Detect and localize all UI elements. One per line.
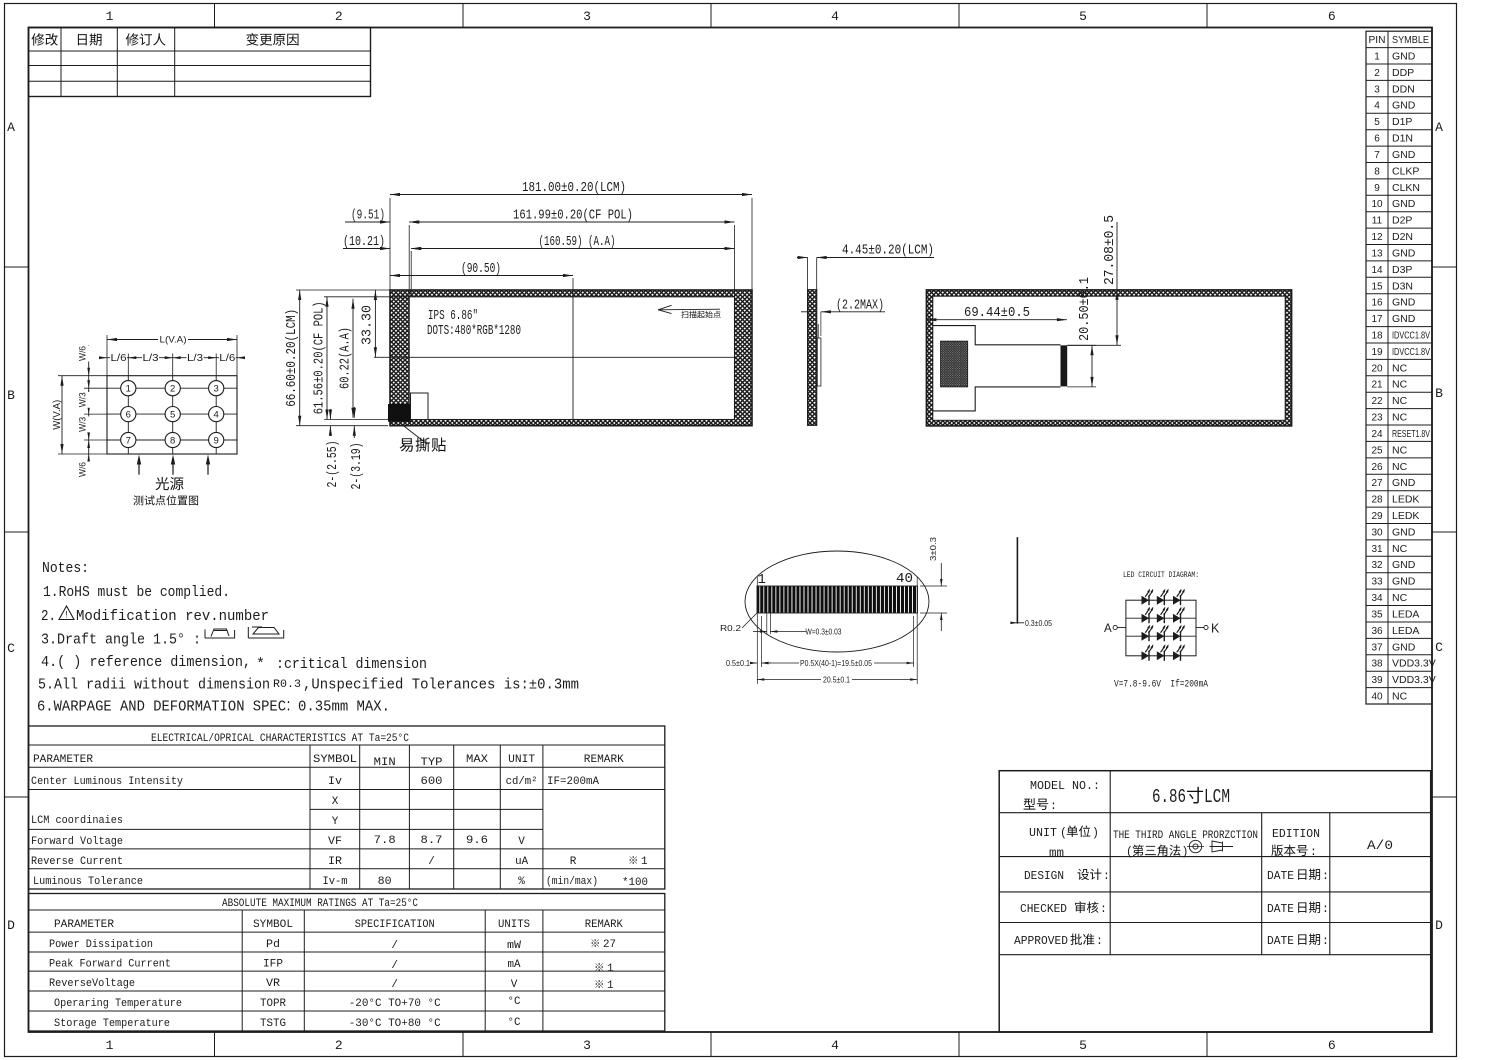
- svg-text:7.8: 7.8: [374, 835, 396, 847]
- svg-text:C: C: [7, 641, 15, 656]
- svg-text:12: 12: [1371, 232, 1383, 243]
- svg-text:R: R: [570, 856, 577, 868]
- svg-text:GND: GND: [1392, 297, 1416, 309]
- svg-text:L/6: L/6: [111, 353, 127, 364]
- svg-text:1: 1: [106, 1038, 114, 1053]
- svg-text:(: (: [1060, 827, 1067, 840]
- svg-text::: :: [1322, 903, 1329, 916]
- svg-text:GND: GND: [1392, 149, 1416, 161]
- svg-text::: :: [1100, 903, 1107, 916]
- svg-text:Peak Forward Current: Peak Forward Current: [49, 959, 171, 971]
- svg-text:IPS 6.86″: IPS 6.86″: [428, 309, 478, 324]
- svg-text:VDD3.3V: VDD3.3V: [1392, 674, 1436, 686]
- svg-text:-30°C TO+80 °C: -30°C TO+80 °C: [349, 1018, 441, 1030]
- svg-text:°C: °C: [508, 1017, 521, 1029]
- svg-text:7: 7: [1374, 150, 1380, 161]
- svg-text:1: 1: [758, 572, 766, 588]
- svg-text:2: 2: [335, 1038, 343, 1053]
- svg-text:mm: mm: [1049, 847, 1064, 860]
- svg-text:33.30: 33.30: [361, 305, 376, 345]
- svg-text:IR: IR: [328, 856, 342, 868]
- svg-text:W/3: W/3: [78, 417, 89, 432]
- svg-text:CLKP: CLKP: [1392, 165, 1419, 177]
- svg-text:14: 14: [1371, 265, 1383, 276]
- svg-text:,Unspecified Tolerances is:±0.: ,Unspecified Tolerances is:±0.3mm: [303, 678, 579, 694]
- svg-text:!: !: [65, 610, 68, 620]
- svg-text::: :: [1096, 935, 1103, 948]
- svg-text::critical dimension: :critical dimension: [276, 657, 427, 673]
- svg-text:3: 3: [1374, 84, 1380, 95]
- svg-text:19: 19: [1371, 347, 1383, 358]
- svg-text:ELECTRICAL/OPRICAL CHARACTERIS: ELECTRICAL/OPRICAL CHARACTERISTICS AT Ta…: [151, 733, 409, 745]
- svg-text:VDD3.3V: VDD3.3V: [1392, 658, 1436, 670]
- svg-text:L(V.A): L(V.A): [160, 335, 187, 346]
- svg-text:V: V: [511, 979, 518, 991]
- svg-text:Pd: Pd: [266, 939, 280, 951]
- svg-text:Reverse Current: Reverse Current: [31, 856, 123, 868]
- svg-text:27.08±0.5: 27.08±0.5: [1102, 215, 1118, 285]
- svg-text:L/3: L/3: [187, 353, 203, 364]
- svg-text:61.56±0.20(CF POL): 61.56±0.20(CF POL): [313, 301, 328, 414]
- svg-text:GND: GND: [1392, 100, 1416, 112]
- svg-text:B: B: [1435, 386, 1443, 401]
- svg-text:26: 26: [1371, 462, 1383, 473]
- svg-text:NC: NC: [1392, 543, 1408, 555]
- svg-text:cd/m²: cd/m²: [506, 776, 538, 788]
- svg-text:D2P: D2P: [1392, 215, 1412, 227]
- svg-text:6: 6: [1328, 9, 1336, 24]
- svg-text:(: (: [1126, 846, 1133, 859]
- svg-text:GND: GND: [1392, 559, 1416, 571]
- svg-text:20: 20: [1371, 363, 1383, 374]
- svg-text:9: 9: [214, 435, 219, 446]
- svg-text:3: 3: [583, 1038, 591, 1053]
- svg-text:MIN: MIN: [374, 757, 396, 769]
- svg-text:A: A: [1435, 120, 1443, 135]
- svg-text:W/3: W/3: [78, 392, 89, 407]
- svg-text:Modification rev.number: Modification rev.number: [76, 609, 269, 625]
- svg-text:IDVCC1.8V: IDVCC1.8V: [1392, 346, 1430, 358]
- svg-text:(2.2MAX): (2.2MAX): [836, 298, 884, 313]
- svg-text:1: 1: [607, 980, 614, 992]
- svg-text:LEDK: LEDK: [1392, 510, 1419, 522]
- svg-text:5: 5: [1079, 9, 1087, 24]
- svg-text:A/0: A/0: [1367, 839, 1393, 853]
- svg-text:1: 1: [106, 9, 114, 24]
- svg-text:mW: mW: [507, 940, 521, 952]
- svg-text::: :: [1310, 846, 1317, 859]
- svg-text:66.60±0.20(LCM): 66.60±0.20(LCM): [285, 309, 300, 407]
- svg-text:23: 23: [1371, 413, 1383, 424]
- svg-text:DDP: DDP: [1392, 67, 1414, 79]
- svg-text:GND: GND: [1392, 576, 1416, 588]
- svg-text:Power Dissipation: Power Dissipation: [49, 939, 153, 951]
- svg-text:60.22(A.A): 60.22(A.A): [339, 327, 354, 389]
- svg-text:DESIGN: DESIGN: [1024, 870, 1064, 883]
- svg-text:2: 2: [335, 9, 343, 24]
- svg-text:3±0.3: 3±0.3: [929, 536, 938, 561]
- svg-text:GND: GND: [1392, 477, 1416, 489]
- svg-text:°C: °C: [508, 996, 521, 1008]
- svg-text:5.All radii without dimension: 5.All radii without dimension: [38, 678, 270, 694]
- svg-text:15: 15: [1371, 281, 1383, 292]
- svg-text:TSTG: TSTG: [260, 1018, 286, 1030]
- svg-text:V: V: [518, 836, 525, 848]
- svg-text:9: 9: [1374, 183, 1380, 194]
- svg-text:11: 11: [1372, 216, 1383, 227]
- svg-text:THE THIRD ANGLE PRORZCTION: THE THIRD ANGLE PRORZCTION: [1113, 830, 1258, 842]
- svg-text:161.99±0.20(CF POL): 161.99±0.20(CF POL): [513, 209, 633, 224]
- svg-text:MODEL NO.:: MODEL NO.:: [1030, 780, 1100, 793]
- svg-text:31: 31: [1371, 544, 1383, 555]
- svg-text:SYMBOL: SYMBOL: [313, 754, 357, 766]
- svg-text:LED CIRCUIT DIAGRAM:: LED CIRCUIT DIAGRAM:: [1123, 570, 1199, 580]
- svg-text:REMARK: REMARK: [585, 919, 623, 931]
- svg-text:36: 36: [1371, 626, 1383, 637]
- svg-text:mA: mA: [508, 959, 521, 971]
- svg-text:8: 8: [170, 435, 175, 446]
- svg-text:CLKN: CLKN: [1392, 182, 1420, 194]
- svg-text:IFP: IFP: [263, 959, 283, 971]
- svg-text:W=0.3±0.03: W=0.3±0.03: [806, 628, 842, 637]
- svg-text:UNIT: UNIT: [1029, 827, 1057, 840]
- svg-text:17: 17: [1371, 314, 1383, 325]
- svg-text:R0.2: R0.2: [720, 624, 742, 633]
- svg-text:2-(3.19): 2-(3.19): [350, 443, 365, 490]
- svg-text:ABSOLUTE MAXIMUM RATINGS AT Ta: ABSOLUTE MAXIMUM RATINGS AT Ta=25°C: [222, 898, 418, 910]
- svg-text:32: 32: [1371, 560, 1383, 571]
- svg-text:GND: GND: [1392, 526, 1416, 538]
- svg-text:1: 1: [126, 384, 131, 395]
- svg-text:Iv-m: Iv-m: [323, 876, 348, 888]
- svg-text:DATE: DATE: [1267, 935, 1294, 948]
- svg-text:1: 1: [1374, 52, 1380, 63]
- svg-text:6: 6: [1374, 134, 1380, 145]
- svg-text:16: 16: [1371, 298, 1383, 309]
- svg-text:IDVCC1.8V: IDVCC1.8V: [1392, 330, 1430, 342]
- svg-text:D3P: D3P: [1392, 264, 1412, 276]
- svg-text:CHECKED: CHECKED: [1020, 903, 1067, 916]
- svg-text:GND: GND: [1392, 313, 1416, 325]
- svg-text:PARAMETER: PARAMETER: [33, 754, 93, 766]
- svg-text:5: 5: [1374, 117, 1380, 128]
- svg-text:25: 25: [1371, 445, 1383, 456]
- svg-text:MAX: MAX: [466, 754, 488, 766]
- svg-text:LEDK: LEDK: [1392, 494, 1419, 506]
- svg-text:GND: GND: [1392, 641, 1416, 653]
- svg-text:18: 18: [1371, 331, 1383, 342]
- svg-text:V=7.8-9.6V If=200mA: V=7.8-9.6V If=200mA: [1114, 679, 1208, 691]
- svg-text:(9.51): (9.51): [351, 209, 385, 224]
- svg-text:39: 39: [1371, 675, 1383, 686]
- svg-text:REMARK: REMARK: [584, 754, 624, 766]
- svg-text:SYMBLE: SYMBLE: [1392, 35, 1429, 46]
- svg-text:Y: Y: [332, 816, 339, 828]
- svg-text:DATE: DATE: [1267, 870, 1294, 883]
- svg-text:600: 600: [421, 776, 443, 788]
- svg-text:NC: NC: [1392, 379, 1408, 391]
- svg-text:1: 1: [607, 963, 614, 975]
- svg-text:20.5±0.1: 20.5±0.1: [823, 676, 850, 685]
- svg-text:uA: uA: [515, 856, 528, 868]
- svg-text:24: 24: [1371, 429, 1383, 440]
- svg-text:VF: VF: [328, 836, 342, 848]
- svg-text:40: 40: [1371, 692, 1383, 703]
- svg-text:4: 4: [1374, 101, 1380, 112]
- svg-text:Operaring Temperature: Operaring Temperature: [54, 998, 182, 1010]
- svg-text:4: 4: [831, 9, 839, 24]
- svg-text:): ): [1182, 846, 1189, 859]
- svg-text:TYP: TYP: [421, 757, 443, 769]
- svg-text:1: 1: [641, 856, 648, 868]
- svg-text:D2N: D2N: [1392, 231, 1413, 243]
- svg-text:/: /: [391, 979, 398, 991]
- svg-text:EDITION: EDITION: [1272, 828, 1320, 841]
- svg-text:LCM coordinaies: LCM coordinaies: [31, 815, 123, 827]
- svg-text:R0.3: R0.3: [273, 679, 301, 691]
- svg-text:0.35mm MAX.: 0.35mm MAX.: [298, 700, 390, 716]
- svg-text:：: ：: [286, 700, 296, 716]
- svg-text::: :: [1322, 935, 1329, 948]
- svg-text:6.WARPAGE AND DEFORMATION SPEC: 6.WARPAGE AND DEFORMATION SPEC: [37, 700, 286, 716]
- svg-text:0.3±0.05: 0.3±0.05: [1025, 619, 1052, 628]
- svg-text:80: 80: [378, 876, 392, 888]
- svg-text:NC: NC: [1392, 592, 1408, 604]
- svg-text:0.5±0.1: 0.5±0.1: [726, 659, 750, 668]
- svg-text:10: 10: [1371, 199, 1383, 210]
- svg-text:NC: NC: [1392, 362, 1408, 374]
- svg-text::: :: [1322, 870, 1329, 883]
- svg-text:2.: 2.: [41, 609, 56, 625]
- svg-text:W(V.A): W(V.A): [52, 400, 63, 430]
- svg-text:2: 2: [170, 384, 175, 395]
- svg-text:K: K: [1211, 622, 1220, 636]
- svg-text:28: 28: [1371, 495, 1383, 506]
- svg-text:Luminous Tolerance: Luminous Tolerance: [33, 876, 143, 888]
- svg-text:69.44±0.5: 69.44±0.5: [964, 305, 1030, 321]
- svg-text:21: 21: [1371, 380, 1383, 391]
- svg-text:40: 40: [896, 571, 913, 587]
- svg-text:1.RoHS must be complied.: 1.RoHS must be complied.: [43, 585, 230, 601]
- svg-text:7: 7: [126, 435, 131, 446]
- svg-text:22: 22: [1371, 396, 1383, 407]
- svg-text:PIN: PIN: [1369, 35, 1386, 46]
- svg-text:LCM: LCM: [1204, 786, 1230, 808]
- svg-text:*100: *100: [622, 877, 648, 889]
- svg-text:-20°C TO+70 °C: -20°C TO+70 °C: [349, 998, 441, 1010]
- svg-text:NC: NC: [1392, 461, 1408, 473]
- svg-text:20.50±0.1: 20.50±0.1: [1077, 277, 1093, 341]
- svg-text:L/6: L/6: [219, 353, 235, 364]
- svg-text:VR: VR: [266, 978, 280, 990]
- svg-text:W/6: W/6: [78, 462, 89, 477]
- svg-text:2-(2.55): 2-(2.55): [326, 441, 341, 488]
- svg-text:NC: NC: [1392, 395, 1408, 407]
- svg-text:*: *: [256, 656, 265, 673]
- svg-text::: :: [1050, 800, 1057, 813]
- svg-text:P0.5X(40-1)=19.5±0.05: P0.5X(40-1)=19.5±0.05: [800, 659, 872, 668]
- svg-text:6.86: 6.86: [1152, 786, 1186, 808]
- svg-text:27: 27: [603, 939, 616, 951]
- svg-text:IF=200mA: IF=200mA: [547, 776, 599, 788]
- svg-text:D1P: D1P: [1392, 116, 1412, 128]
- svg-text:(10.21): (10.21): [343, 235, 385, 250]
- svg-text:): ): [1092, 827, 1099, 840]
- svg-text:(90.50): (90.50): [461, 262, 501, 277]
- svg-text:4.( ) reference dimension,: 4.( ) reference dimension,: [41, 655, 251, 671]
- svg-text:8.7: 8.7: [421, 835, 443, 847]
- svg-text:Iv: Iv: [328, 776, 342, 788]
- svg-text:D3N: D3N: [1392, 280, 1413, 292]
- svg-text:TOPR: TOPR: [260, 998, 286, 1010]
- svg-text:30: 30: [1371, 527, 1383, 538]
- svg-text:/: /: [428, 856, 435, 868]
- svg-text:A: A: [1104, 623, 1112, 635]
- svg-text:38: 38: [1371, 659, 1383, 670]
- svg-text:GND: GND: [1392, 247, 1416, 259]
- svg-text:3: 3: [583, 9, 591, 24]
- svg-text:B: B: [7, 388, 15, 403]
- svg-text:GND: GND: [1392, 51, 1416, 63]
- svg-text:DOTS:480*RGB*1280: DOTS:480*RGB*1280: [427, 324, 521, 339]
- svg-text:/: /: [391, 960, 398, 972]
- svg-text:181.00±0.20(LCM): 181.00±0.20(LCM): [522, 181, 626, 196]
- svg-text:6: 6: [1328, 1038, 1336, 1053]
- svg-text:W/6: W/6: [78, 346, 89, 361]
- svg-text:UNITS: UNITS: [498, 919, 530, 931]
- svg-text:GND: GND: [1392, 198, 1416, 210]
- svg-text:%: %: [518, 876, 525, 888]
- svg-text:13: 13: [1371, 248, 1383, 259]
- svg-text::: :: [1103, 870, 1110, 883]
- svg-text:Storage Temperature: Storage Temperature: [54, 1018, 170, 1030]
- svg-text:8: 8: [1374, 166, 1380, 177]
- svg-text:9.6: 9.6: [466, 835, 488, 847]
- svg-text:D: D: [7, 918, 15, 933]
- svg-text:LEDA: LEDA: [1392, 609, 1419, 621]
- svg-text:UNIT: UNIT: [508, 754, 535, 766]
- svg-text:NC: NC: [1392, 444, 1408, 456]
- svg-text:APPROVED: APPROVED: [1014, 935, 1068, 948]
- svg-text:RESET1.8V: RESET1.8V: [1392, 428, 1430, 440]
- svg-text:2: 2: [1374, 68, 1380, 79]
- svg-text:33: 33: [1371, 577, 1383, 588]
- svg-text:D1N: D1N: [1392, 133, 1413, 145]
- svg-text:LEDA: LEDA: [1392, 625, 1419, 637]
- svg-text:L/3: L/3: [143, 353, 159, 364]
- svg-text:DDN: DDN: [1392, 83, 1415, 95]
- svg-text:DATE: DATE: [1267, 903, 1294, 916]
- svg-text:NC: NC: [1392, 691, 1408, 703]
- svg-text:35: 35: [1371, 610, 1383, 621]
- svg-text:27: 27: [1371, 478, 1383, 489]
- svg-text:SPECIFICATION: SPECIFICATION: [355, 919, 435, 931]
- svg-text:4.45±0.20(LCM): 4.45±0.20(LCM): [842, 244, 934, 259]
- svg-text:6: 6: [126, 410, 131, 421]
- svg-text:3: 3: [214, 384, 219, 395]
- svg-text:X: X: [332, 796, 339, 808]
- svg-text:(min/max): (min/max): [546, 876, 598, 888]
- svg-text:34: 34: [1371, 593, 1383, 604]
- svg-text:PARAMETER: PARAMETER: [54, 919, 114, 931]
- svg-text:5: 5: [170, 410, 175, 421]
- svg-text:29: 29: [1371, 511, 1383, 522]
- svg-text:37: 37: [1371, 642, 1383, 653]
- svg-text:NC: NC: [1392, 412, 1408, 424]
- svg-text:(160.59) (A.A): (160.59) (A.A): [539, 235, 616, 250]
- svg-text:ReverseVoltage: ReverseVoltage: [49, 978, 135, 990]
- svg-text:4: 4: [831, 1038, 839, 1053]
- svg-text:SYMBOL: SYMBOL: [253, 919, 293, 931]
- svg-text:/: /: [391, 940, 398, 952]
- svg-text:5: 5: [1079, 1038, 1087, 1053]
- svg-text:Forward Voltage: Forward Voltage: [31, 836, 123, 848]
- svg-text:A: A: [7, 120, 15, 135]
- svg-text:Center Luminous Intensity: Center Luminous Intensity: [31, 776, 183, 788]
- svg-text:3.Draft angle 1.5° :: 3.Draft angle 1.5° :: [41, 633, 201, 649]
- svg-text:4: 4: [214, 410, 219, 421]
- svg-text:C: C: [1435, 640, 1443, 655]
- svg-text:D: D: [1435, 918, 1443, 933]
- svg-text:Notes:: Notes:: [42, 561, 89, 577]
